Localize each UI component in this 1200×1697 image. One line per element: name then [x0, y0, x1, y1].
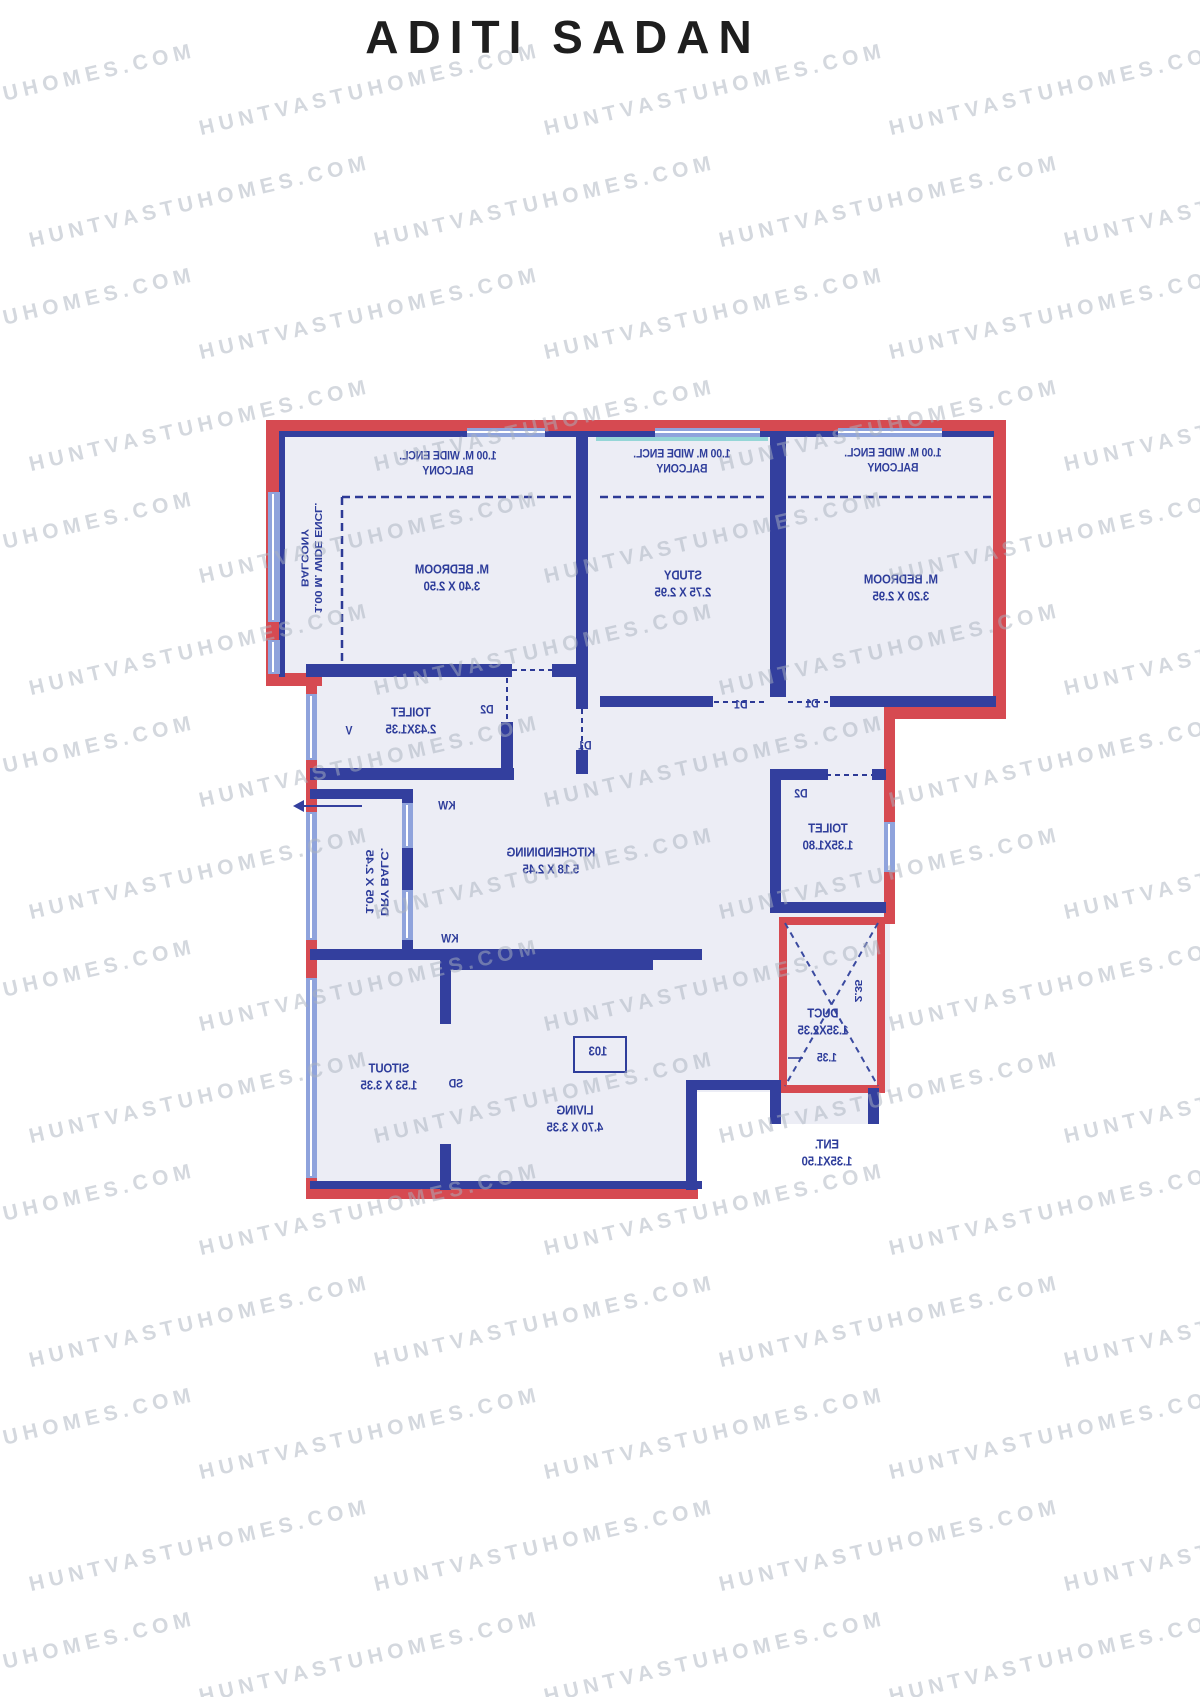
unit-number-box [573, 1036, 627, 1073]
floor-plan-drawing [0, 0, 1200, 1697]
page-title: ADITI SADAN [365, 10, 760, 64]
page: ADITI SADAN [0, 0, 1200, 1697]
